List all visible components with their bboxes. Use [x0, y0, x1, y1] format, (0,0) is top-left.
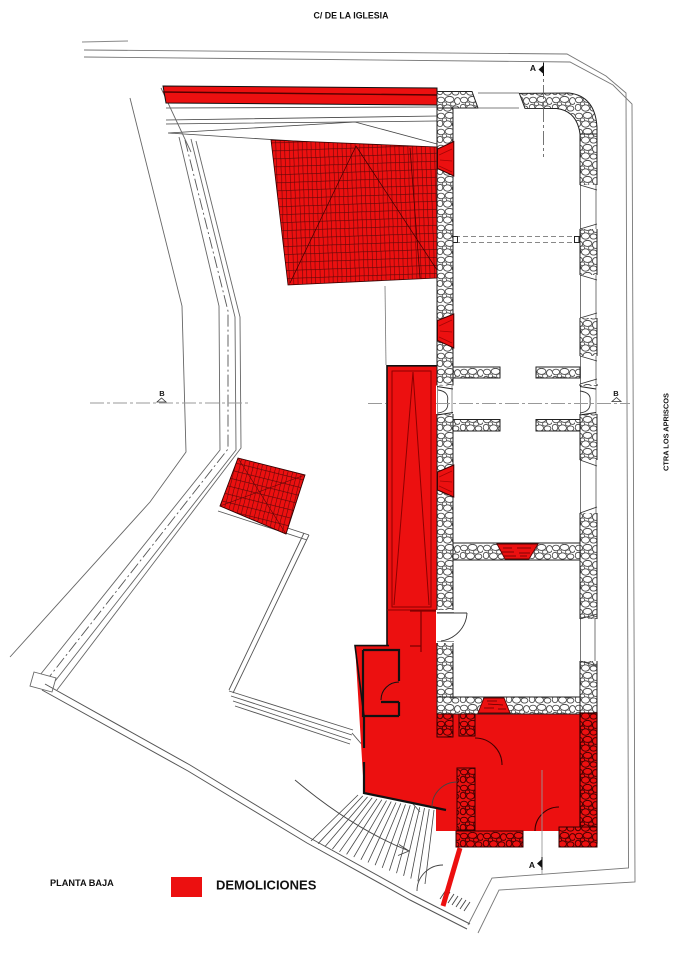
svg-text:B: B — [613, 389, 619, 398]
svg-text:B: B — [159, 389, 165, 398]
svg-text:A: A — [530, 63, 536, 73]
svg-text:PLANTA BAJA: PLANTA BAJA — [50, 878, 114, 888]
svg-text:C/ DE LA IGLESIA: C/ DE LA IGLESIA — [314, 11, 390, 21]
svg-text:A: A — [529, 860, 535, 870]
svg-text:CTRA LOS APRISCOS: CTRA LOS APRISCOS — [662, 393, 671, 471]
svg-text:DEMOLICIONES: DEMOLICIONES — [216, 878, 317, 893]
